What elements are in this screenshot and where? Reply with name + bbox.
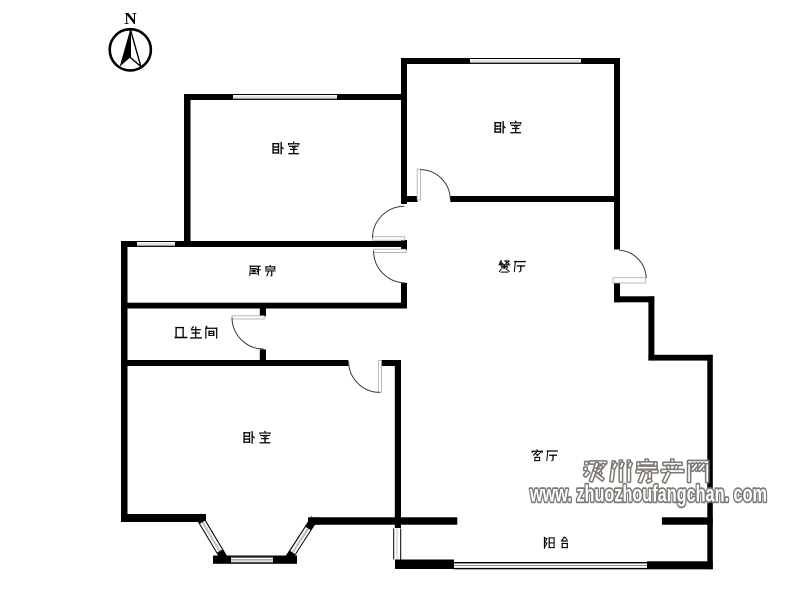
svg-text:N: N — [124, 9, 137, 28]
svg-text:www. zhuozhoufangchan. com: www. zhuozhoufangchan. com — [529, 481, 767, 507]
